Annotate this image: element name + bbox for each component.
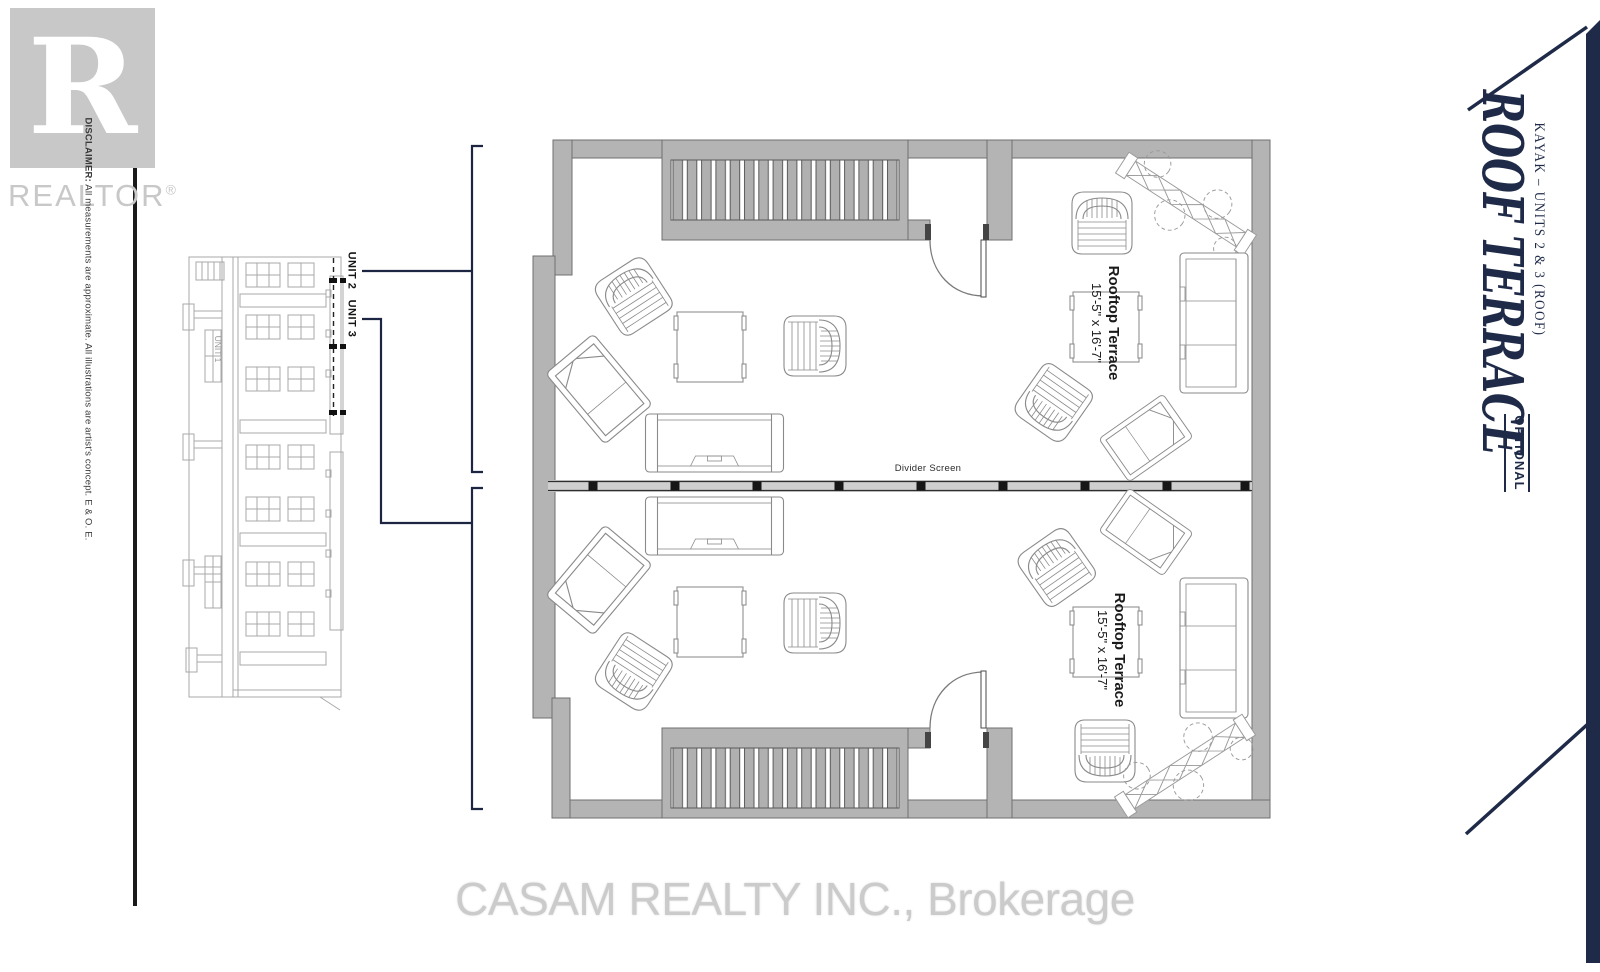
roof-terrace-plan-sheet: { "branding": { "realtor": { "letter": "…	[0, 0, 1600, 972]
divider-screen	[548, 480, 1252, 492]
armchair	[1011, 360, 1096, 445]
brokerage-watermark: CASAM REALTY INC., Brokerage	[345, 872, 1245, 926]
unit-3-label: UNIT 3	[345, 293, 358, 345]
chaise-lounge	[1099, 394, 1193, 482]
realtor-wordmark: REALTOR®	[8, 178, 208, 214]
sofa	[1180, 578, 1248, 718]
chaise-lounge	[546, 334, 653, 444]
unit-1-label: UNIT 1	[213, 329, 223, 369]
optional-tag: OPTIONAL	[1504, 414, 1530, 492]
sofa	[1180, 253, 1248, 393]
unit-2-label: UNIT 2	[345, 245, 358, 297]
unit-brackets	[362, 146, 483, 809]
armchair	[1075, 720, 1135, 782]
coffee-table	[674, 312, 746, 382]
sofa	[646, 497, 784, 555]
armchair	[784, 593, 846, 653]
armchair	[1014, 525, 1099, 610]
chaise-lounge	[1099, 488, 1193, 576]
registered-trademark-icon: ®	[166, 182, 178, 198]
armchair	[591, 254, 675, 339]
armchair	[784, 316, 846, 376]
armchair	[1072, 192, 1132, 254]
chaise-lounge	[546, 525, 653, 635]
upper-stairs	[662, 140, 908, 240]
building-elevation	[183, 257, 343, 710]
sheet-title: ROOF TERRACE	[1459, 90, 1543, 420]
sofa	[646, 414, 784, 472]
divider-screen-label: Divider Screen	[888, 463, 968, 475]
upper-terrace-label: Rooftop Terrace 15'-5" x 16'-7"	[1086, 258, 1122, 388]
upper-terrace-door	[925, 224, 989, 297]
plan-graphics	[0, 0, 1600, 972]
armchair	[591, 630, 675, 715]
lower-terrace-label: Rooftop Terrace 15'-5" x 16'-7"	[1092, 585, 1128, 715]
lower-terrace-door	[925, 671, 989, 748]
disclaimer-text: DISCLAIMER: All measurements are approxi…	[80, 118, 94, 663]
coffee-table	[674, 587, 746, 657]
plan-walls	[533, 140, 1270, 818]
lower-stairs	[662, 728, 908, 818]
